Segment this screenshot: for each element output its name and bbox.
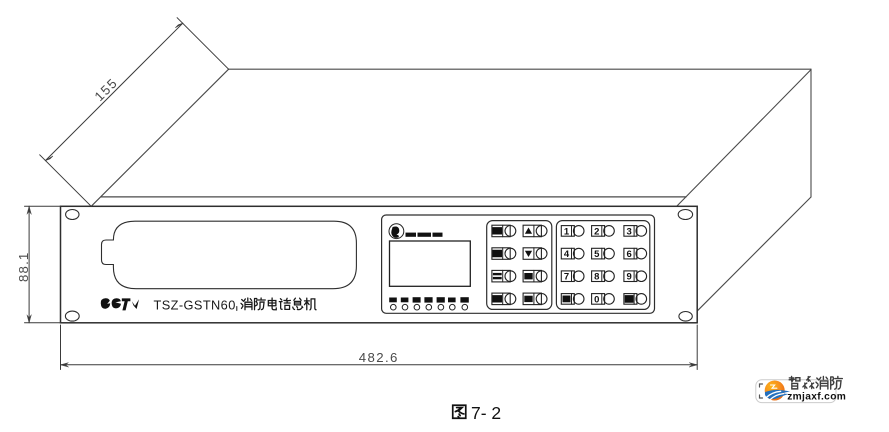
svg-text:0: 0 bbox=[594, 294, 599, 305]
svg-text:7- 2: 7- 2 bbox=[471, 403, 501, 423]
svg-text:TSZ-GSTN60: TSZ-GSTN60 bbox=[154, 298, 236, 313]
svg-text:8: 8 bbox=[594, 272, 599, 283]
svg-text:4: 4 bbox=[564, 249, 570, 260]
svg-text:1: 1 bbox=[564, 226, 570, 237]
svg-text:7: 7 bbox=[564, 272, 569, 283]
svg-text:482.6: 482.6 bbox=[359, 350, 399, 365]
svg-text:6: 6 bbox=[626, 249, 631, 260]
svg-text:9: 9 bbox=[626, 272, 631, 283]
svg-text:88.1: 88.1 bbox=[16, 252, 31, 282]
svg-text:5: 5 bbox=[594, 249, 600, 260]
svg-text:3: 3 bbox=[626, 226, 631, 237]
svg-text:2: 2 bbox=[594, 226, 599, 237]
svg-text:155: 155 bbox=[92, 75, 121, 104]
svg-text:zmjaxf.com: zmjaxf.com bbox=[787, 391, 846, 402]
